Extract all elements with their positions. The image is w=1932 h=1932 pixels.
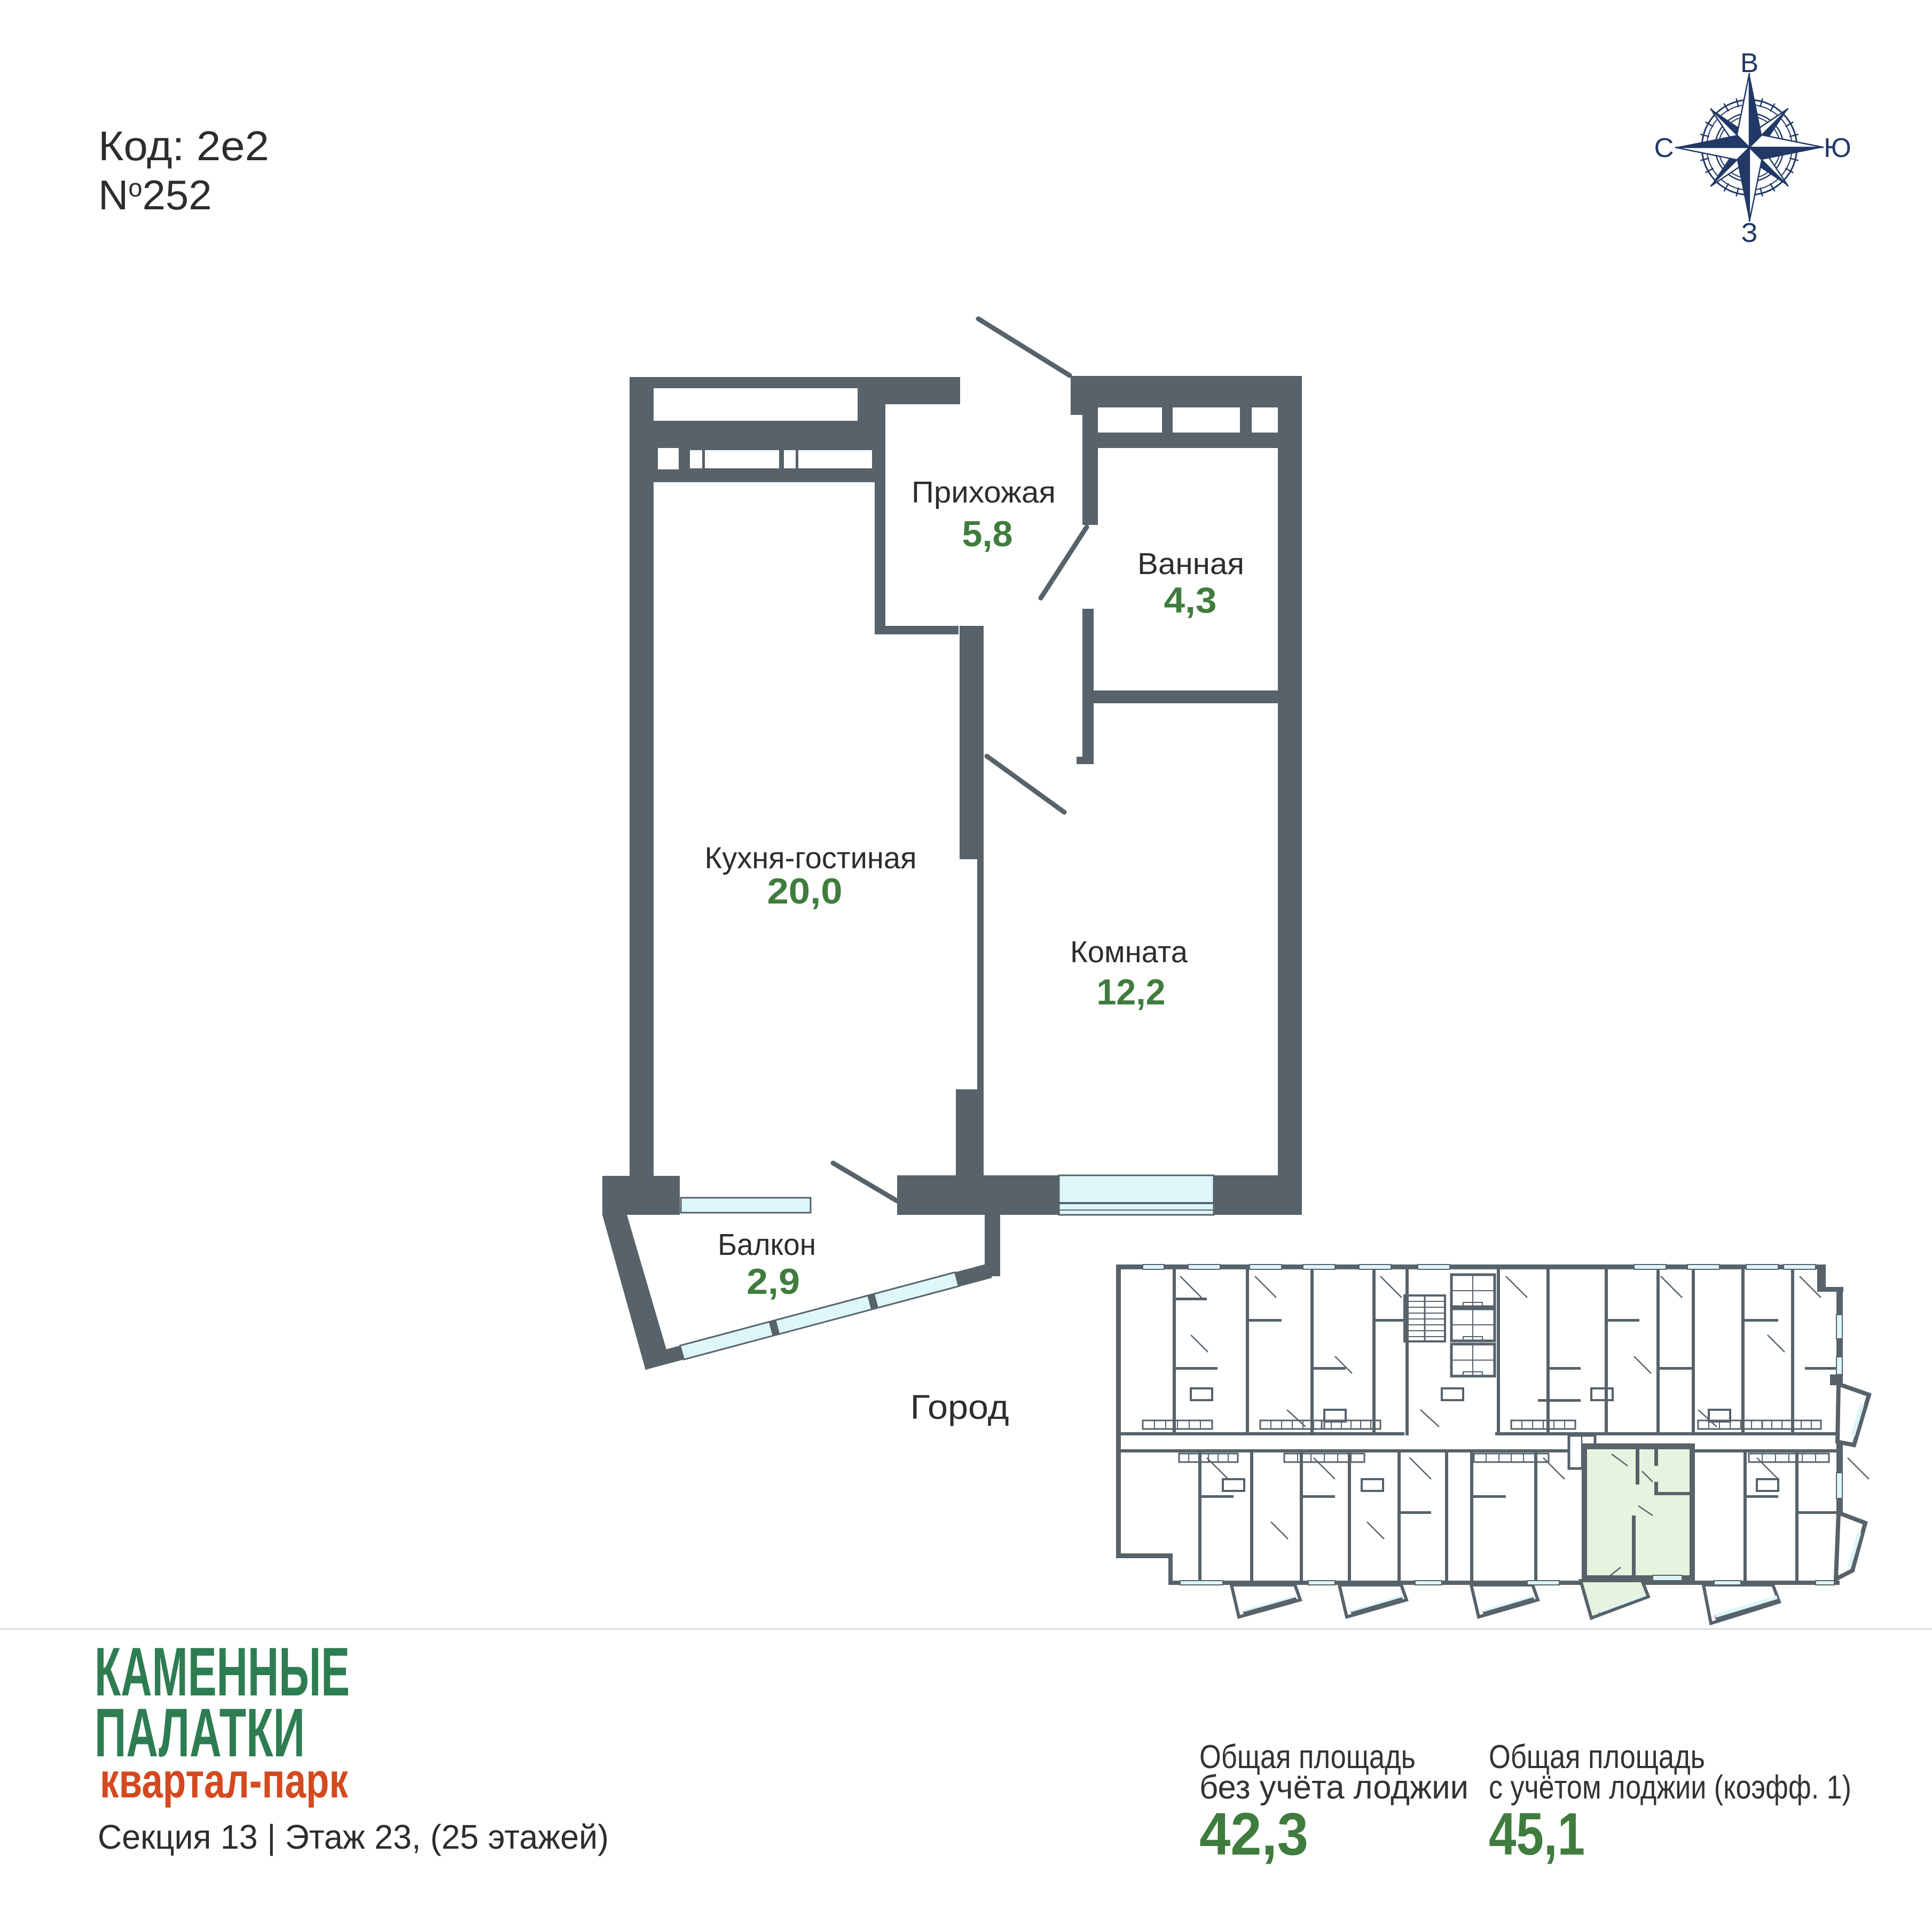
svg-text:Прихожая: Прихожая	[912, 475, 1056, 509]
svg-text:Ванная: Ванная	[1137, 547, 1244, 581]
svg-text:С: С	[1654, 132, 1674, 163]
svg-text:45,1: 45,1	[1489, 1801, 1585, 1867]
svg-text:5,8: 5,8	[962, 514, 1013, 554]
svg-text:2,9: 2,9	[747, 1261, 800, 1302]
svg-text:Секция 13 | Этаж 23, (25 этаже: Секция 13 | Этаж 23, (25 этажей)	[98, 1818, 609, 1856]
svg-text:З: З	[1741, 217, 1758, 248]
svg-text:В: В	[1740, 48, 1758, 78]
svg-text:Кухня-гостиная: Кухня-гостиная	[705, 841, 917, 875]
svg-text:Комната: Комната	[1070, 935, 1188, 969]
svg-text:Балкон: Балкон	[718, 1228, 816, 1262]
svg-text:квартал-парк: квартал-парк	[100, 1754, 349, 1808]
svg-text:Ю: Ю	[1824, 132, 1851, 163]
svg-text:12,2: 12,2	[1097, 972, 1166, 1012]
svg-text:20,0: 20,0	[767, 871, 843, 912]
svg-text:Город: Город	[910, 1388, 1009, 1426]
svg-text:No252: No252	[98, 171, 212, 218]
svg-text:Код: 2е2: Код: 2е2	[98, 122, 269, 169]
svg-text:4,3: 4,3	[1164, 580, 1217, 621]
svg-text:42,3: 42,3	[1199, 1801, 1308, 1867]
